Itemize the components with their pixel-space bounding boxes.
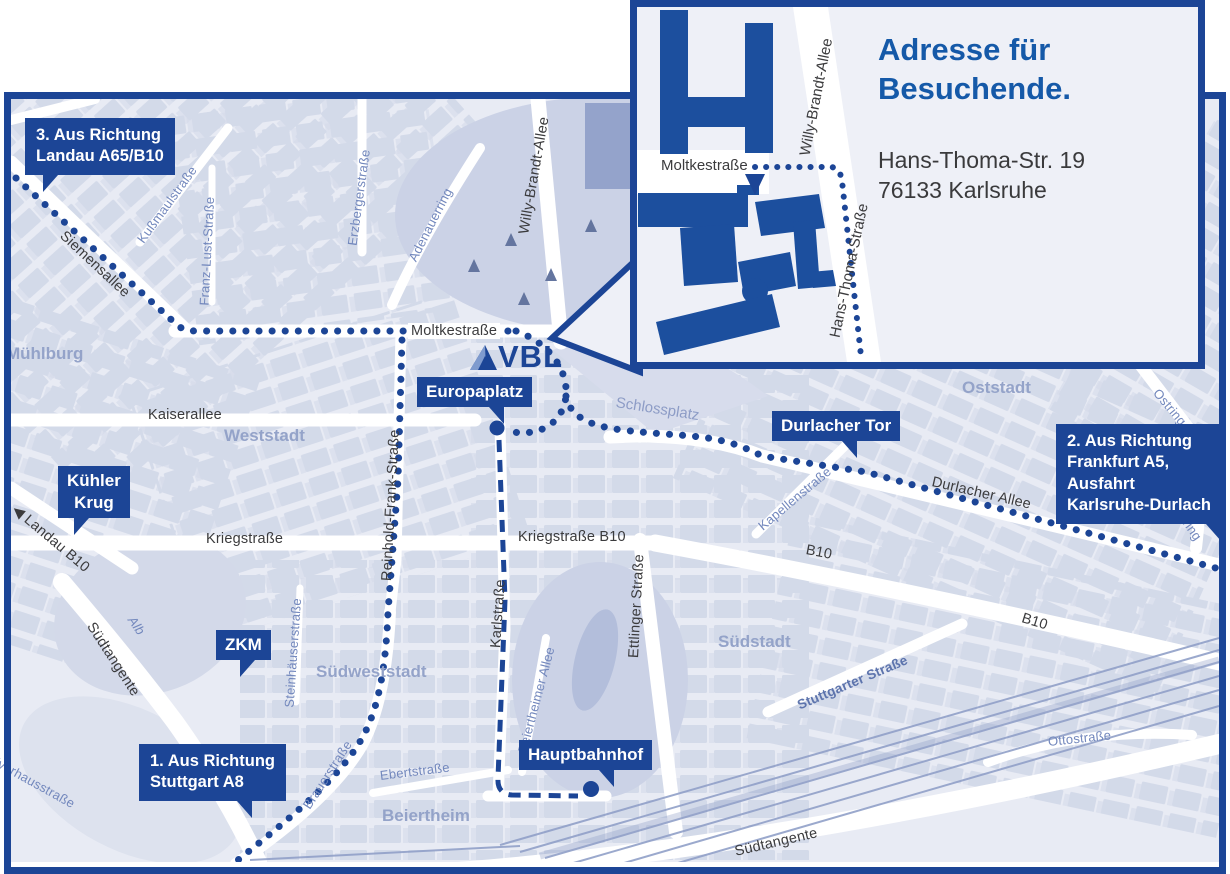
callout-text: Ausfahrt bbox=[1067, 474, 1211, 495]
callout-text: 3. Aus Richtung bbox=[36, 125, 164, 146]
callout-text: Stuttgart A8 bbox=[150, 772, 275, 793]
callout-hauptbahnhof: Hauptbahnhof bbox=[519, 740, 652, 770]
inset-address: Hans-Thoma-Str. 19 76133 Karlsruhe bbox=[878, 145, 1085, 206]
callout-text: Europaplatz bbox=[426, 382, 523, 401]
inset-address-line: 76133 Karlsruhe bbox=[878, 175, 1085, 205]
area-label-muehlburg: Mühlburg bbox=[6, 344, 83, 364]
area-label-weststadt: Weststadt bbox=[224, 426, 305, 446]
inset-address-line: Hans-Thoma-Str. 19 bbox=[878, 145, 1085, 175]
street-label-kaiserallee: Kaiserallee bbox=[148, 407, 222, 423]
area-label-suedstadt: Südstadt bbox=[718, 632, 791, 652]
inset-detail-panel: Moltkestraße Willy-Brandt-Allee Hans-Tho… bbox=[630, 0, 1205, 369]
callout-route-3-landau: 3. Aus Richtung Landau A65/B10 bbox=[25, 118, 175, 175]
street-label-moltkestrasse: Moltkestraße bbox=[408, 323, 500, 339]
callout-kuehler-krug: Kühler Krug bbox=[58, 466, 130, 518]
area-label-beiertheim: Beiertheim bbox=[382, 806, 470, 826]
street-label-kriegstrasse-b10: Kriegstraße B10 bbox=[518, 529, 626, 545]
callout-text: Landau A65/B10 bbox=[36, 146, 164, 167]
callout-text: Hauptbahnhof bbox=[528, 745, 643, 764]
callout-route-1-stuttgart: 1. Aus Richtung Stuttgart A8 bbox=[139, 744, 286, 801]
callout-text: Durlacher Tor bbox=[781, 416, 891, 435]
area-label-oststadt: Oststadt bbox=[962, 378, 1031, 398]
callout-europaplatz: Europaplatz bbox=[417, 377, 532, 407]
area-label-suedweststadt: Südweststadt bbox=[316, 662, 427, 682]
inset-title: Adresse für Besuchende. bbox=[878, 31, 1071, 109]
callout-text: Krug bbox=[67, 492, 121, 514]
inset-title-line: Besuchende. bbox=[878, 70, 1071, 109]
inset-street-label-moltkestrasse: Moltkestraße bbox=[661, 157, 748, 174]
inset-title-line: Adresse für bbox=[878, 31, 1071, 70]
callout-text: Kühler bbox=[67, 470, 121, 492]
callout-text: 2. Aus Richtung bbox=[1067, 431, 1211, 452]
callout-text: Karlsruhe-Durlach bbox=[1067, 495, 1211, 516]
callout-durlacher-tor: Durlacher Tor bbox=[772, 411, 900, 441]
vbl-triangle-icon bbox=[468, 343, 498, 371]
callout-text: ZKM bbox=[225, 635, 262, 654]
callout-route-2-frankfurt: 2. Aus Richtung Frankfurt A5, Ausfahrt K… bbox=[1056, 424, 1222, 524]
street-label-kriegstrasse: Kriegstraße bbox=[206, 531, 283, 547]
callout-zkm: ZKM bbox=[216, 630, 271, 660]
callout-text: Frankfurt A5, bbox=[1067, 452, 1211, 473]
hauptbahnhof-dot bbox=[583, 781, 599, 797]
karlsruhe-directions-map: Moltkestraße Kaiserallee Kriegstraße Kri… bbox=[0, 0, 1230, 874]
callout-text: 1. Aus Richtung bbox=[150, 751, 275, 772]
